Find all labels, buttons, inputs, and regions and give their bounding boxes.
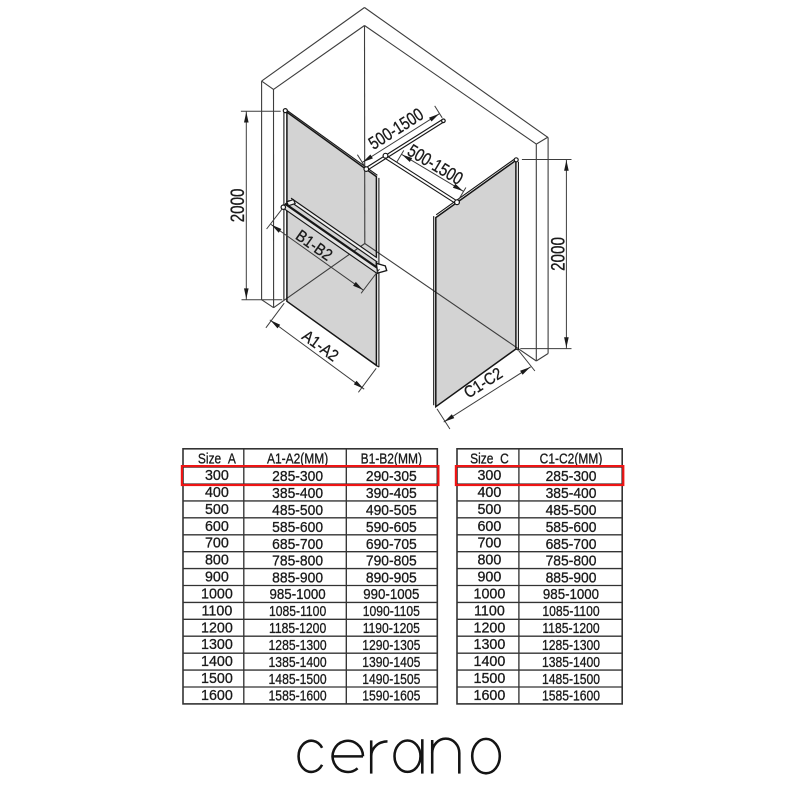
svg-text:485-500: 485-500 xyxy=(546,502,597,518)
svg-text:500: 500 xyxy=(477,502,501,518)
svg-text:285-300: 285-300 xyxy=(272,468,323,484)
svg-text:400: 400 xyxy=(205,485,229,501)
svg-text:800: 800 xyxy=(477,553,501,569)
svg-text:1000: 1000 xyxy=(473,587,505,603)
svg-text:1485-1500: 1485-1500 xyxy=(269,671,327,687)
svg-text:1190-1205: 1190-1205 xyxy=(363,620,420,636)
svg-text:900: 900 xyxy=(477,570,501,586)
svg-text:385-400: 385-400 xyxy=(546,485,597,501)
svg-text:900: 900 xyxy=(205,570,229,586)
svg-text:1500: 1500 xyxy=(201,671,233,687)
svg-text:300: 300 xyxy=(205,468,229,484)
svg-text:600: 600 xyxy=(477,519,501,535)
svg-text:Size C: Size C xyxy=(470,450,509,466)
svg-text:885-900: 885-900 xyxy=(546,569,597,585)
svg-text:290-305: 290-305 xyxy=(366,468,417,484)
svg-text:1585-1600: 1585-1600 xyxy=(269,688,327,704)
svg-text:1400: 1400 xyxy=(201,654,233,670)
svg-text:690-705: 690-705 xyxy=(366,536,417,552)
svg-text:300: 300 xyxy=(477,468,501,484)
svg-text:A1-A2(MM): A1-A2(MM) xyxy=(267,450,328,466)
svg-text:1500: 1500 xyxy=(473,671,505,687)
svg-text:1385-1400: 1385-1400 xyxy=(542,654,600,670)
svg-text:685-700: 685-700 xyxy=(546,536,597,552)
svg-text:490-505: 490-505 xyxy=(366,502,417,518)
svg-text:B1-B2(MM): B1-B2(MM) xyxy=(361,450,422,466)
svg-text:1085-1100: 1085-1100 xyxy=(542,603,599,619)
svg-text:1085-1100: 1085-1100 xyxy=(269,603,326,619)
svg-text:1600: 1600 xyxy=(473,688,505,704)
svg-text:Size A: Size A xyxy=(198,450,236,466)
svg-text:800: 800 xyxy=(205,553,229,569)
svg-text:785-800: 785-800 xyxy=(272,552,323,568)
svg-text:785-800: 785-800 xyxy=(546,552,597,568)
svg-text:1400: 1400 xyxy=(473,654,505,670)
svg-text:1485-1500: 1485-1500 xyxy=(542,671,600,687)
svg-text:885-900: 885-900 xyxy=(272,569,323,585)
svg-text:485-500: 485-500 xyxy=(272,502,323,518)
svg-text:285-300: 285-300 xyxy=(546,468,597,484)
svg-text:1290-1305: 1290-1305 xyxy=(362,637,420,653)
svg-text:1200: 1200 xyxy=(473,620,505,636)
svg-text:1285-1300: 1285-1300 xyxy=(542,637,600,653)
svg-text:1490-1505: 1490-1505 xyxy=(362,671,420,687)
svg-text:1590-1605: 1590-1605 xyxy=(362,688,420,704)
svg-text:385-400: 385-400 xyxy=(272,485,323,501)
svg-text:1300: 1300 xyxy=(201,637,233,653)
svg-text:C1-C2(MM): C1-C2(MM) xyxy=(540,450,603,466)
svg-text:1300: 1300 xyxy=(473,637,505,653)
svg-text:1600: 1600 xyxy=(201,688,233,704)
svg-text:1585-1600: 1585-1600 xyxy=(542,688,600,704)
svg-text:2000: 2000 xyxy=(226,188,248,222)
svg-text:500: 500 xyxy=(205,502,229,518)
svg-text:985-1000: 985-1000 xyxy=(543,587,599,603)
svg-text:2000: 2000 xyxy=(547,237,569,271)
svg-text:1390-1405: 1390-1405 xyxy=(362,654,420,670)
svg-text:585-600: 585-600 xyxy=(546,519,597,535)
svg-text:1185-1200: 1185-1200 xyxy=(542,620,599,636)
svg-text:390-405: 390-405 xyxy=(366,485,417,501)
svg-text:600: 600 xyxy=(205,519,229,535)
svg-text:1185-1200: 1185-1200 xyxy=(269,620,326,636)
svg-text:1100: 1100 xyxy=(202,603,233,619)
svg-text:700: 700 xyxy=(477,536,501,552)
svg-text:700: 700 xyxy=(205,536,229,552)
svg-text:1385-1400: 1385-1400 xyxy=(269,654,327,670)
svg-text:1090-1105: 1090-1105 xyxy=(363,603,420,619)
svg-text:685-700: 685-700 xyxy=(272,536,323,552)
svg-text:890-905: 890-905 xyxy=(366,569,417,585)
svg-text:585-600: 585-600 xyxy=(272,519,323,535)
svg-text:1100: 1100 xyxy=(474,603,505,619)
svg-text:1285-1300: 1285-1300 xyxy=(269,637,327,653)
svg-text:400: 400 xyxy=(477,485,501,501)
svg-text:1000: 1000 xyxy=(201,587,233,603)
svg-text:990-1005: 990-1005 xyxy=(363,587,419,603)
svg-text:1200: 1200 xyxy=(201,620,233,636)
svg-text:985-1000: 985-1000 xyxy=(270,587,326,603)
svg-text:590-605: 590-605 xyxy=(366,519,417,535)
svg-text:790-805: 790-805 xyxy=(366,552,417,568)
